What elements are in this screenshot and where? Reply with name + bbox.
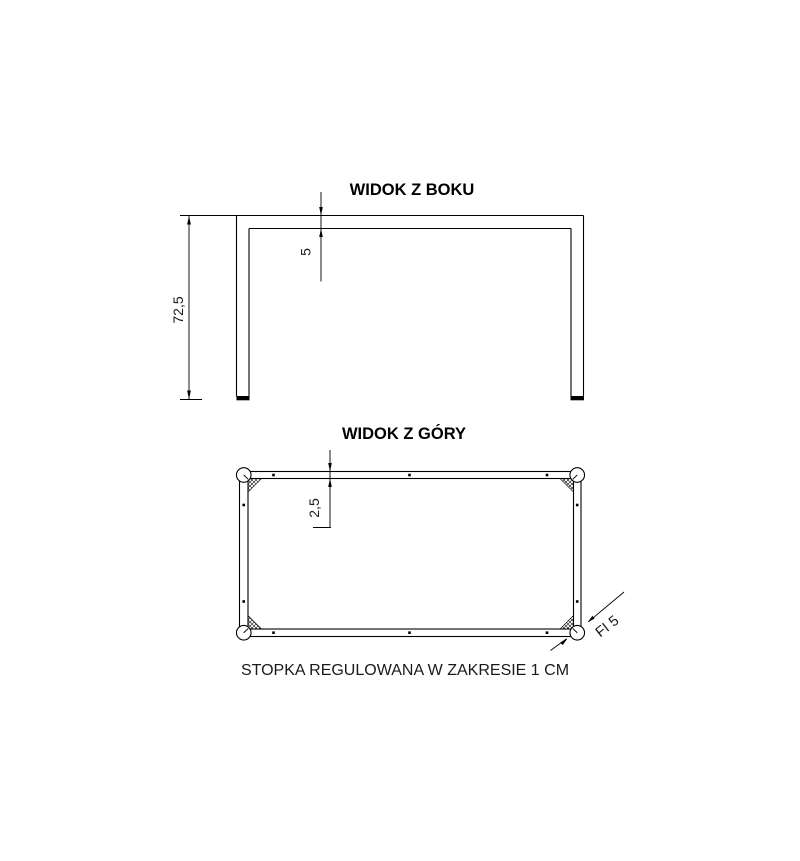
dot — [576, 504, 579, 507]
frame-thickness-arrow-down — [328, 463, 332, 472]
frame-thickness-dimension-label: 2,5 — [306, 498, 322, 518]
table-leg-right — [571, 216, 584, 397]
height-dimension-arrow-down — [187, 391, 191, 400]
dot — [546, 474, 549, 477]
beam-thickness-dimension-label: 5 — [298, 248, 314, 256]
height-dimension: 72,5 — [170, 216, 202, 400]
beam-thickness-arrow-down — [319, 207, 323, 216]
dot — [408, 631, 411, 634]
technical-drawing-canvas: WIDOK Z BOKU 72,5 5 WIDOK Z GÓRY — [0, 0, 800, 861]
foot-pad-left — [237, 397, 250, 401]
foot-diameter-label: FI 5 — [593, 613, 623, 641]
dot — [242, 504, 245, 507]
height-dimension-label: 72,5 — [170, 296, 186, 323]
dot — [272, 474, 275, 477]
side-view: WIDOK Z BOKU 72,5 5 — [170, 181, 584, 400]
dot — [408, 474, 411, 477]
top-view-title: WIDOK Z GÓRY — [342, 424, 466, 443]
dot — [272, 631, 275, 634]
foot-diameter-arrow-lower — [560, 639, 567, 646]
footer-note: STOPKA REGULOWANA W ZAKRESIE 1 CM — [241, 662, 569, 679]
beam-thickness-arrow-up — [319, 229, 323, 238]
table-leg-left — [237, 216, 250, 397]
beam-thickness-dimension: 5 — [298, 192, 323, 282]
frame-inner-rect — [248, 479, 574, 630]
dot — [242, 600, 245, 603]
height-dimension-arrow-up — [187, 216, 191, 225]
side-view-title: WIDOK Z BOKU — [350, 181, 475, 199]
dot — [546, 631, 549, 634]
top-view: WIDOK Z GÓRY — [236, 424, 624, 651]
dot — [576, 600, 579, 603]
foot-pad-right — [571, 397, 585, 401]
